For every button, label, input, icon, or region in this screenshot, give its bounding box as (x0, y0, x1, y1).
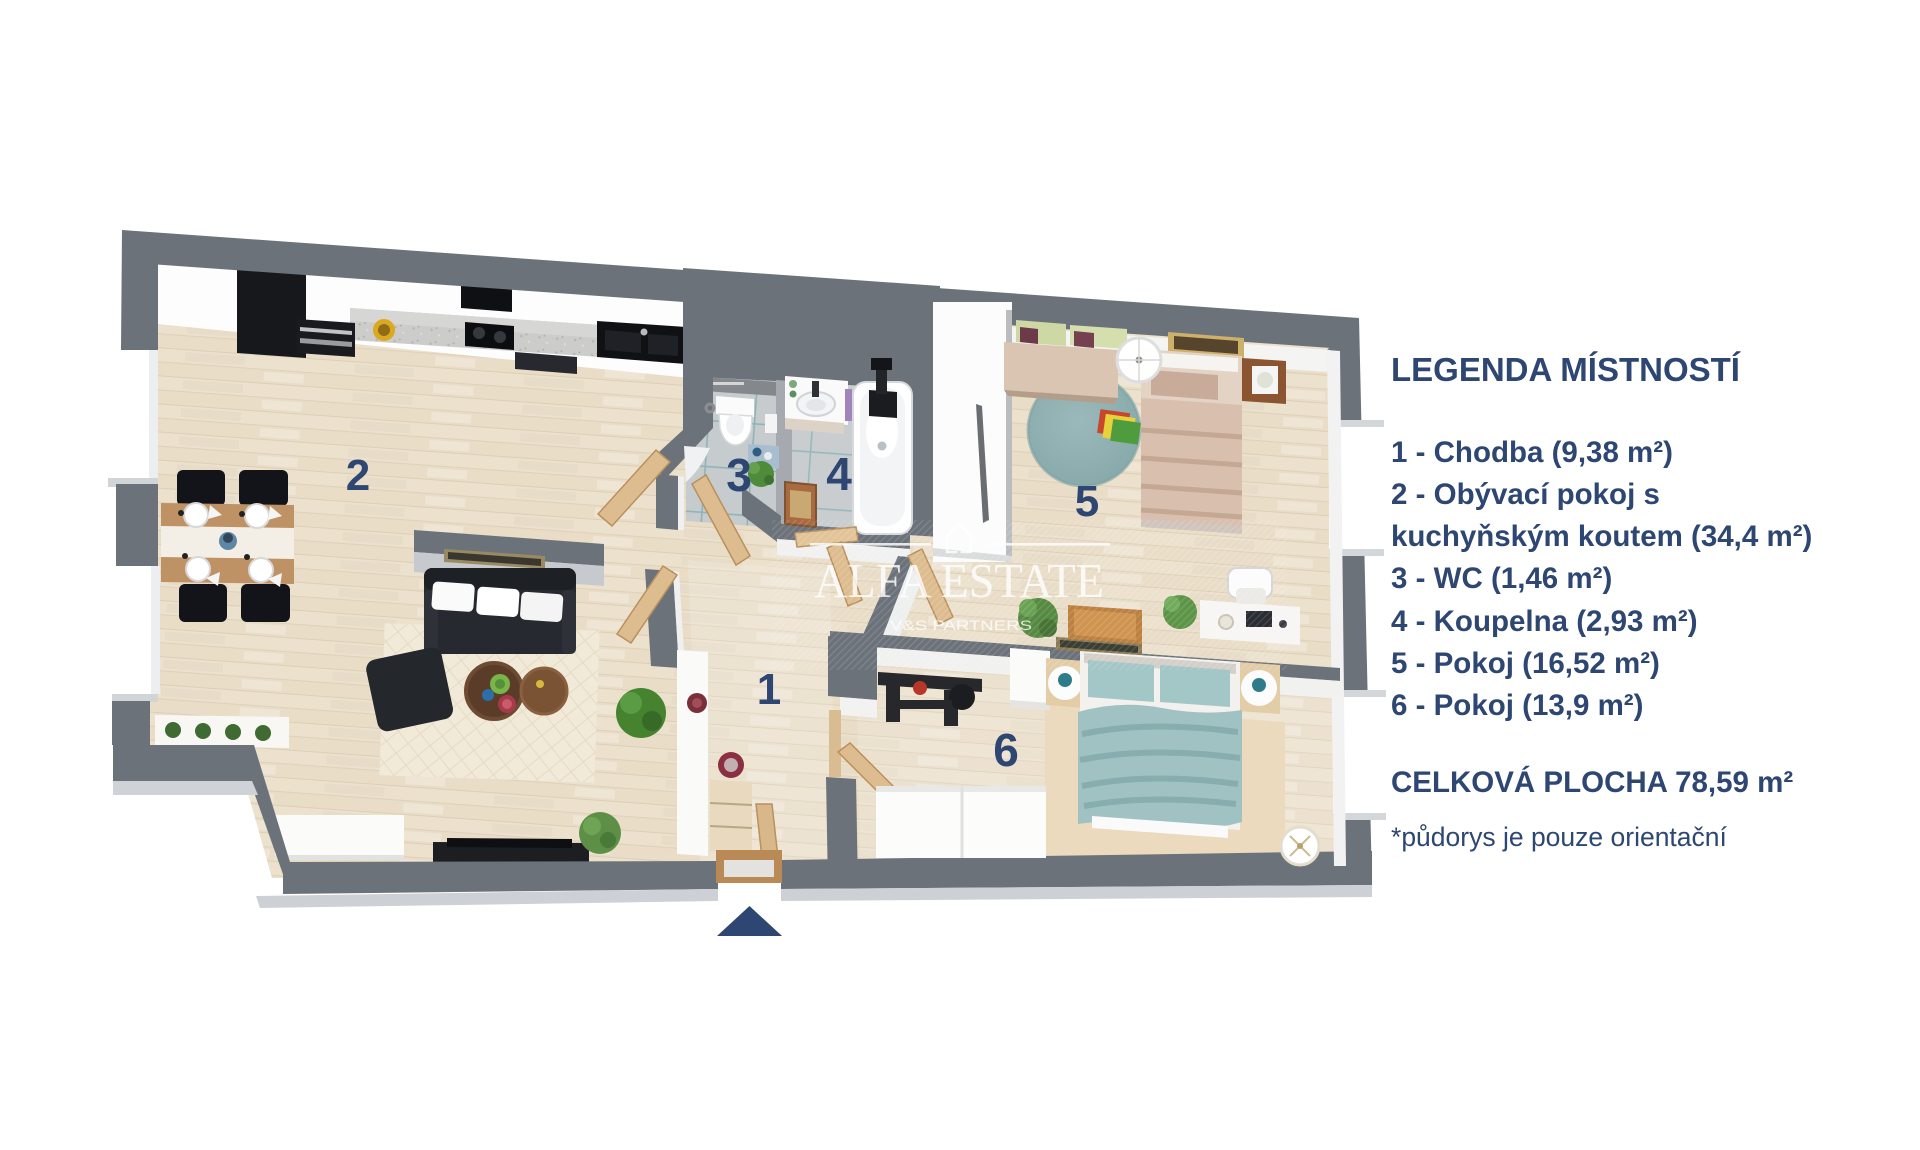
svg-text:4: 4 (826, 448, 852, 500)
svg-text:2: 2 (346, 451, 370, 500)
svg-text:V&S PARTNERS: V&S PARTNERS (890, 618, 1032, 633)
svg-text:3 - WC (1,46 m²): 3 - WC (1,46 m²) (1391, 562, 1612, 595)
svg-text:5 - Pokoj (16,52 m²): 5 - Pokoj (16,52 m²) (1391, 647, 1660, 680)
svg-text:3: 3 (726, 449, 752, 501)
svg-text:kuchyňským koutem (34,4 m²): kuchyňským koutem (34,4 m²) (1391, 520, 1812, 553)
svg-text:6: 6 (993, 724, 1019, 776)
svg-text:6 - Pokoj (13,9 m²): 6 - Pokoj (13,9 m²) (1391, 689, 1643, 722)
svg-text:5: 5 (1075, 477, 1099, 526)
svg-text:*půdorys je pouze orientační: *půdorys je pouze orientační (1391, 822, 1728, 852)
svg-text:2 - Obývací pokoj s: 2 - Obývací pokoj s (1391, 478, 1660, 511)
svg-text:1: 1 (757, 665, 781, 714)
svg-text:4 - Koupelna (2,93 m²): 4 - Koupelna (2,93 m²) (1391, 605, 1698, 638)
svg-text:LEGENDA MÍSTNOSTÍ: LEGENDA MÍSTNOSTÍ (1391, 351, 1741, 388)
svg-text:CELKOVÁ PLOCHA 78,59 m²: CELKOVÁ PLOCHA 78,59 m² (1391, 765, 1793, 799)
svg-text:1 - Chodba (9,38 m²): 1 - Chodba (9,38 m²) (1391, 436, 1673, 469)
svg-text:ALFA ESTATE: ALFA ESTATE (814, 553, 1104, 608)
